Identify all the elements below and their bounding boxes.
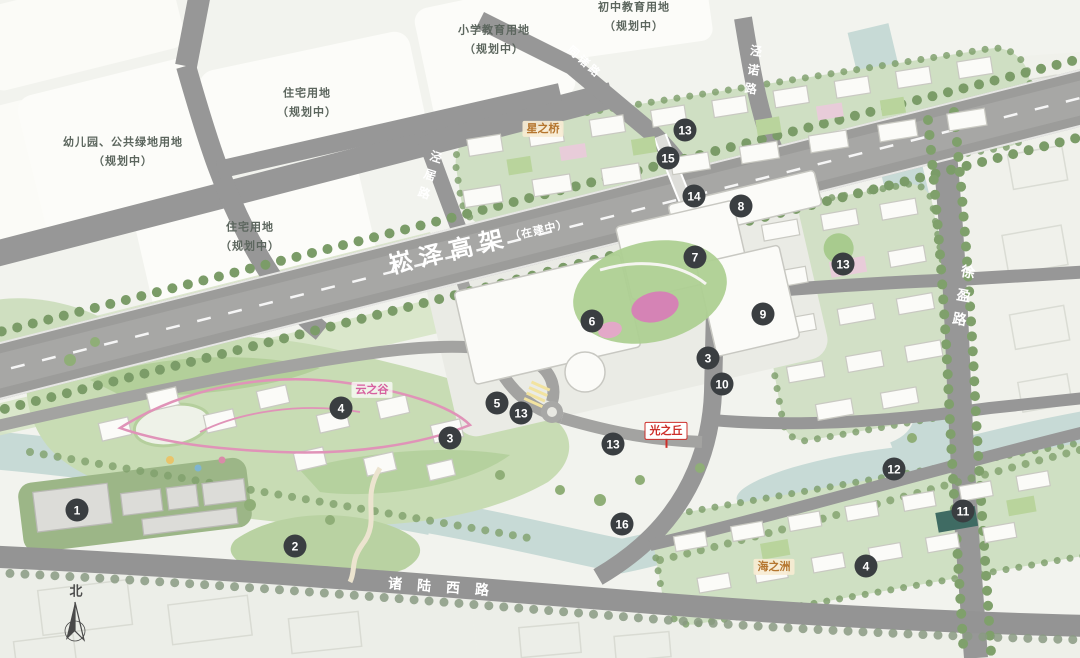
place-label-1: 云之谷	[352, 382, 393, 398]
parcel-label-1: 住宅用地（规划中）	[277, 84, 337, 121]
marker-3: 3	[697, 347, 720, 370]
road-label-2: 泾诺路	[741, 44, 766, 103]
north-label: 北	[69, 581, 82, 600]
marker-12: 12	[883, 458, 906, 481]
place-pin	[665, 439, 667, 448]
parcel-label-2: 住宅用地（规划中）	[220, 218, 280, 255]
marker-1: 1	[66, 499, 89, 522]
road-label-3: 泾居路	[412, 148, 446, 207]
marker-13: 13	[674, 119, 697, 142]
marker-2: 2	[284, 535, 307, 558]
marker-11: 11	[952, 500, 975, 523]
marker-16: 16	[611, 513, 634, 536]
overlay-layer: 幼儿园、公共绿地用地（规划中）住宅用地（规划中）住宅用地（规划中）小学教育用地（…	[0, 0, 1080, 658]
marker-14: 14	[683, 185, 706, 208]
marker-4: 4	[855, 555, 878, 578]
marker-13: 13	[510, 402, 533, 425]
parcel-label-4: 初中教育用地（规划中）	[598, 0, 670, 36]
marker-3: 3	[439, 427, 462, 450]
marker-10: 10	[711, 373, 734, 396]
marker-15: 15	[657, 147, 680, 170]
road-label-1: 同诸路	[564, 42, 606, 82]
marker-9: 9	[752, 303, 775, 326]
masterplan-map: 幼儿园、公共绿地用地（规划中）住宅用地（规划中）住宅用地（规划中）小学教育用地（…	[0, 0, 1080, 658]
marker-8: 8	[730, 195, 753, 218]
road-label-4: 徐盈路	[947, 263, 979, 337]
place-label-0: 星之桥	[523, 121, 564, 137]
marker-4: 4	[330, 397, 353, 420]
road-label-5: 诸陆西路	[387, 573, 504, 601]
marker-13: 13	[832, 253, 855, 276]
marker-13: 13	[602, 433, 625, 456]
marker-5: 5	[486, 392, 509, 415]
place-label-2: 光之丘	[645, 422, 688, 440]
parcel-label-3: 小学教育用地（规划中）	[458, 21, 530, 58]
road-label-0: 崧泽高架（在建中）	[384, 204, 571, 281]
marker-6: 6	[581, 310, 604, 333]
marker-7: 7	[684, 246, 707, 269]
parcel-label-0: 幼儿园、公共绿地用地（规划中）	[63, 133, 183, 170]
place-label-3: 海之洲	[754, 559, 795, 575]
